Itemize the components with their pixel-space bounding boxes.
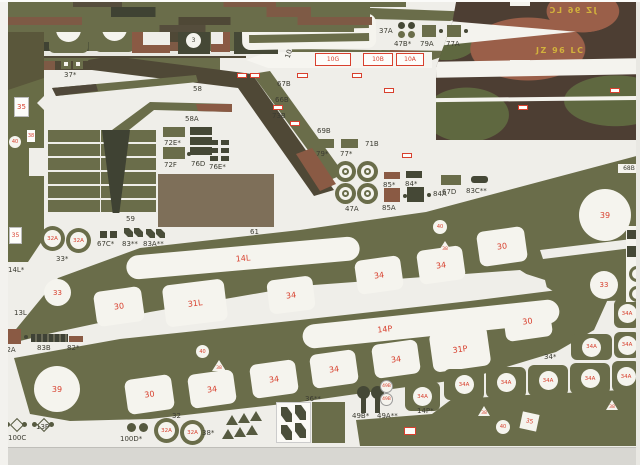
part-76E [210, 148, 218, 153]
strip-10A: 10A [396, 53, 424, 66]
strip-label-71B: 71B [365, 140, 379, 148]
strip-label-66B: 66B [275, 96, 289, 104]
part-77A-dot [464, 29, 468, 33]
tile-34A: 34A [444, 369, 484, 400]
part-76D-a [190, 127, 212, 135]
part-label-77: 77* [340, 150, 352, 158]
part-79A-dot [439, 29, 443, 33]
bottom-margin [0, 447, 640, 465]
band2-square-31P: 31P [428, 325, 491, 373]
camo-marking-mirrored: JZ 96 LC [548, 6, 596, 15]
strip-10G: 10G [315, 53, 351, 66]
part-47B-dot [398, 22, 405, 29]
part-label-79A: 79A [420, 40, 434, 48]
part-47A [357, 183, 378, 204]
band1-square-31L: 31L [162, 278, 229, 327]
circle-39: 39 [579, 189, 631, 241]
band2-square-34: 34 [371, 339, 421, 379]
hole-3: 3 [186, 33, 201, 48]
part-77A [447, 25, 461, 37]
tile-34A: 34A [570, 363, 610, 394]
part-label-49As: 49A** [377, 412, 398, 420]
part-67C [100, 231, 107, 238]
part-84A [407, 187, 424, 202]
strip-label-73B: 73B [272, 112, 286, 120]
band2-square-30: 30 [502, 301, 553, 342]
strip-label-67B: 67B [277, 80, 291, 88]
part-label-58: 58 [193, 85, 202, 93]
part-82A-dot [24, 335, 28, 339]
part-77 [341, 139, 358, 148]
bottom-marker-40: 40 [496, 420, 510, 434]
part-76E [210, 156, 218, 161]
part-label-72E: 72E* [164, 139, 181, 147]
part-72F-dot [187, 152, 191, 156]
part-84A-dot [427, 193, 431, 197]
strip-73B [0, 17, 372, 25]
tile-34A: 34A [486, 367, 526, 398]
tag-40: 40 [9, 136, 21, 148]
part-label-34s: 34* [544, 353, 556, 361]
strip-tag [290, 121, 300, 126]
part-100C [5, 417, 27, 432]
left-margin [0, 0, 8, 465]
part-49B-circle: 49B [380, 393, 393, 406]
part-47B-dot [398, 31, 405, 38]
part-84s [406, 171, 422, 178]
strip-tag [518, 105, 528, 110]
band1-square-34: 34 [266, 275, 316, 314]
part-76E [210, 140, 218, 145]
part-79 [317, 139, 334, 148]
part-label-37: 37* [64, 71, 76, 79]
part-83C [471, 176, 488, 183]
part-label-72F: 72F [164, 161, 177, 169]
strip-tag [273, 105, 283, 110]
part-47A [335, 183, 356, 204]
part-85s [384, 172, 400, 179]
tag-38: 38 [27, 130, 35, 142]
part-label-47B: 47B* [394, 40, 411, 48]
white-gap [436, 58, 640, 78]
band2-square-30: 30 [124, 374, 175, 415]
part-83B [31, 334, 68, 342]
part-76E [221, 140, 229, 145]
part-label-76E: 76E* [209, 163, 226, 171]
part-67C [110, 231, 117, 238]
part-label-13L: 13L [14, 309, 27, 317]
part-label-38s: 38* [202, 429, 214, 437]
part-76D-c [190, 147, 212, 155]
strip-tag [237, 73, 247, 78]
part-label-33s: 33* [56, 255, 68, 263]
part-label-77A: 77A [446, 40, 460, 48]
stripe [249, 33, 369, 43]
part-label-100D: 100D* [120, 435, 142, 443]
part-label-49Bs: 49B* [352, 412, 369, 420]
camo-block: JZ 96 LC JZ 96 LC [436, 0, 640, 140]
part-59 [48, 130, 156, 213]
model-parts-sheet: JZ 96 LC JZ 96 LC 31L* 31P* ▼ 32 32 37* … [0, 0, 640, 465]
band2-marker-40: 40 [196, 345, 209, 358]
camo-marking: JZ 96 LC [536, 46, 584, 55]
part-36-box [276, 402, 311, 443]
part-label-83: 83** [122, 240, 138, 248]
part-label-14Ps: 14P* [417, 407, 434, 415]
part-32A-ring: 32A [154, 418, 179, 443]
strip-tag [352, 73, 362, 78]
part-49-stem [361, 398, 366, 413]
part-76D-b [190, 137, 212, 145]
part-32A-ring: 32A [66, 228, 91, 253]
part-label-76D: 76D [191, 160, 205, 168]
tag-35b: 35 [9, 227, 22, 244]
top-margin [0, 0, 640, 2]
strip-tag [297, 73, 308, 78]
part-76E [221, 156, 229, 161]
strip-tag [402, 153, 412, 158]
band1-circle-33-right: 33 [590, 271, 618, 299]
strip-label-69B: 69B [317, 127, 331, 135]
band2-circle-39: 39 [34, 366, 80, 412]
part-59-wedge [102, 130, 130, 213]
strip-66B [0, 7, 370, 17]
part-label-100C: 100C [8, 434, 26, 442]
right-margin [636, 0, 640, 465]
part-label-83C: 83C** [466, 187, 487, 195]
part-100D [139, 423, 148, 432]
bottom-marker-35: 35 [519, 411, 539, 431]
tile-34A: 34A [571, 334, 612, 360]
part-label-59: 59 [126, 215, 135, 223]
part-label-82: 82* [67, 344, 79, 352]
registration-notch [510, 60, 530, 68]
part-label-37A: 37A [379, 27, 393, 35]
part-61 [158, 174, 274, 227]
white-line [436, 96, 640, 102]
strip-10B: 10B [363, 53, 393, 66]
part-36-square [312, 402, 345, 443]
part-label-14L-star: 14L* [8, 266, 24, 274]
part-47B-dot [408, 22, 415, 29]
band1-marker-40: 40 [433, 220, 447, 234]
part-49B-circle: 49B [380, 380, 393, 393]
part-label-79: 79* [316, 150, 328, 158]
part-100D [127, 423, 136, 432]
strip-tag [384, 88, 394, 93]
band1-square-34: 34 [354, 255, 404, 295]
part-label-47A: 47A [345, 205, 359, 213]
part-79A [422, 25, 436, 37]
part-label-83A: 83A** [143, 240, 164, 248]
strip-tag [250, 73, 260, 78]
part-label-83B: 83B [37, 344, 51, 352]
band1-circle-33: 33 [44, 279, 71, 306]
part-label-58A: 58A [185, 115, 199, 123]
part-32A-ring: 32A [40, 226, 65, 251]
strip-plain [0, 25, 354, 32]
part-67D [441, 175, 461, 185]
part-85A [384, 188, 400, 202]
part-47B-dot [408, 31, 415, 38]
strip-tag [610, 88, 620, 93]
part-label-85A: 85A [382, 204, 396, 212]
band2-square-34: 34 [309, 349, 359, 389]
part-59-line [100, 130, 101, 213]
part-82 [69, 336, 83, 342]
part-47A [357, 161, 378, 182]
part-label-67D: 67D [442, 188, 456, 196]
band1-square-30: 30 [476, 226, 528, 267]
part-label-32: 32 [172, 412, 181, 420]
band2-square-34: 34 [187, 369, 237, 409]
part-label-67C: 67C* [97, 240, 114, 248]
part-76E [221, 148, 229, 153]
part-37-a [61, 59, 71, 69]
part-37-b [73, 59, 83, 69]
part-72E [163, 127, 185, 137]
part-100C [32, 417, 54, 432]
tag-35: 35 [14, 97, 29, 117]
bottom-piece-tag [404, 427, 416, 435]
band1-square-30: 30 [93, 286, 145, 327]
part-72F [163, 147, 185, 159]
part-label-61: 61 [250, 228, 259, 236]
part-47A [335, 161, 356, 182]
band2-square-34: 34 [249, 359, 299, 399]
tile-34A: 34A [528, 365, 568, 396]
